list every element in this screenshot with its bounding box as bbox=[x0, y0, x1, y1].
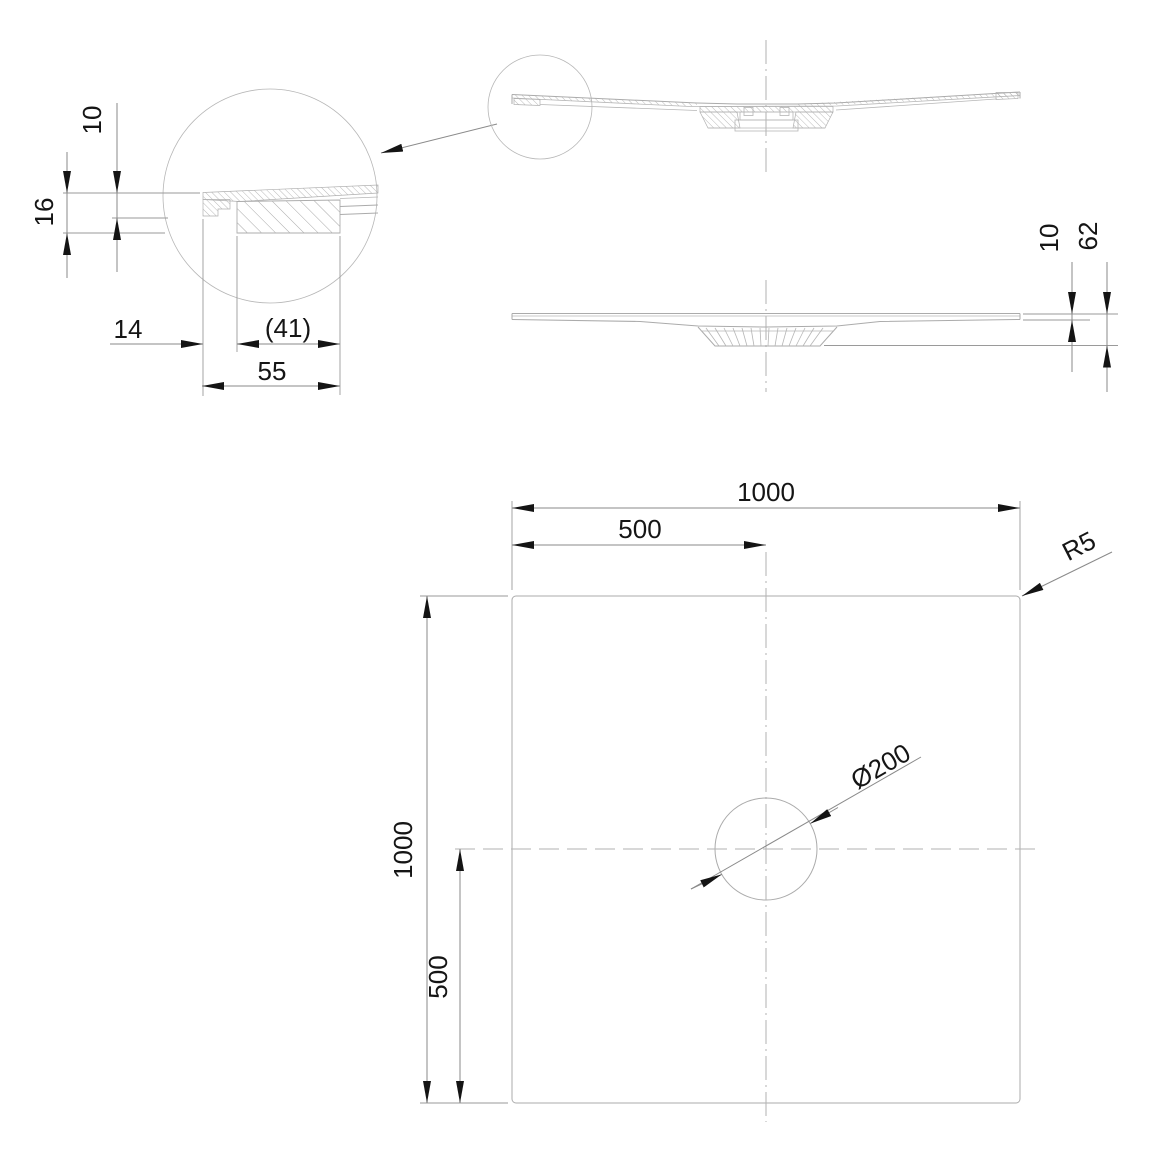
plan-diameter-callout: Ø200 bbox=[691, 737, 921, 889]
detail-callout-circle bbox=[488, 55, 592, 159]
dim-detail-inner-width: (41) bbox=[265, 313, 311, 343]
detail-leader-arrow bbox=[381, 124, 497, 153]
technical-drawing: 10 16 14 (41) 55 bbox=[0, 0, 1155, 1166]
dim-side-total-height: 62 bbox=[1073, 222, 1103, 251]
dim-detail-total-thickness: 16 bbox=[29, 198, 59, 227]
dim-plan-width: 1000 bbox=[737, 477, 795, 507]
section-view bbox=[488, 40, 1020, 172]
dim-plan-depth-half: 500 bbox=[423, 955, 453, 998]
dim-side-plate-thickness: 10 bbox=[1034, 224, 1064, 253]
detail-view: 10 16 14 (41) 55 bbox=[29, 89, 497, 396]
drain-funnel bbox=[698, 327, 837, 346]
dim-detail-edge-offset: 14 bbox=[114, 314, 143, 344]
dim-detail-plate-thickness: 10 bbox=[77, 106, 107, 135]
side-view: 10 62 bbox=[512, 222, 1118, 392]
plan-view: 1000 500 1000 500 R5 Ø200 bbox=[388, 477, 1112, 1122]
dim-detail-outer-width: 55 bbox=[258, 356, 287, 386]
dim-plan-depth: 1000 bbox=[388, 821, 418, 879]
detail-profile bbox=[203, 185, 378, 233]
side-dims: 10 62 bbox=[824, 222, 1118, 392]
dim-plan-drain-diameter: Ø200 bbox=[845, 737, 915, 795]
drawing-canvas: 10 16 14 (41) 55 bbox=[0, 0, 1155, 1166]
detail-dims-bottom: 14 (41) 55 bbox=[110, 219, 340, 396]
plan-radius-callout: R5 bbox=[1022, 525, 1112, 596]
dim-plan-width-half: 500 bbox=[618, 514, 661, 544]
detail-dims-left: 10 16 bbox=[29, 103, 200, 278]
